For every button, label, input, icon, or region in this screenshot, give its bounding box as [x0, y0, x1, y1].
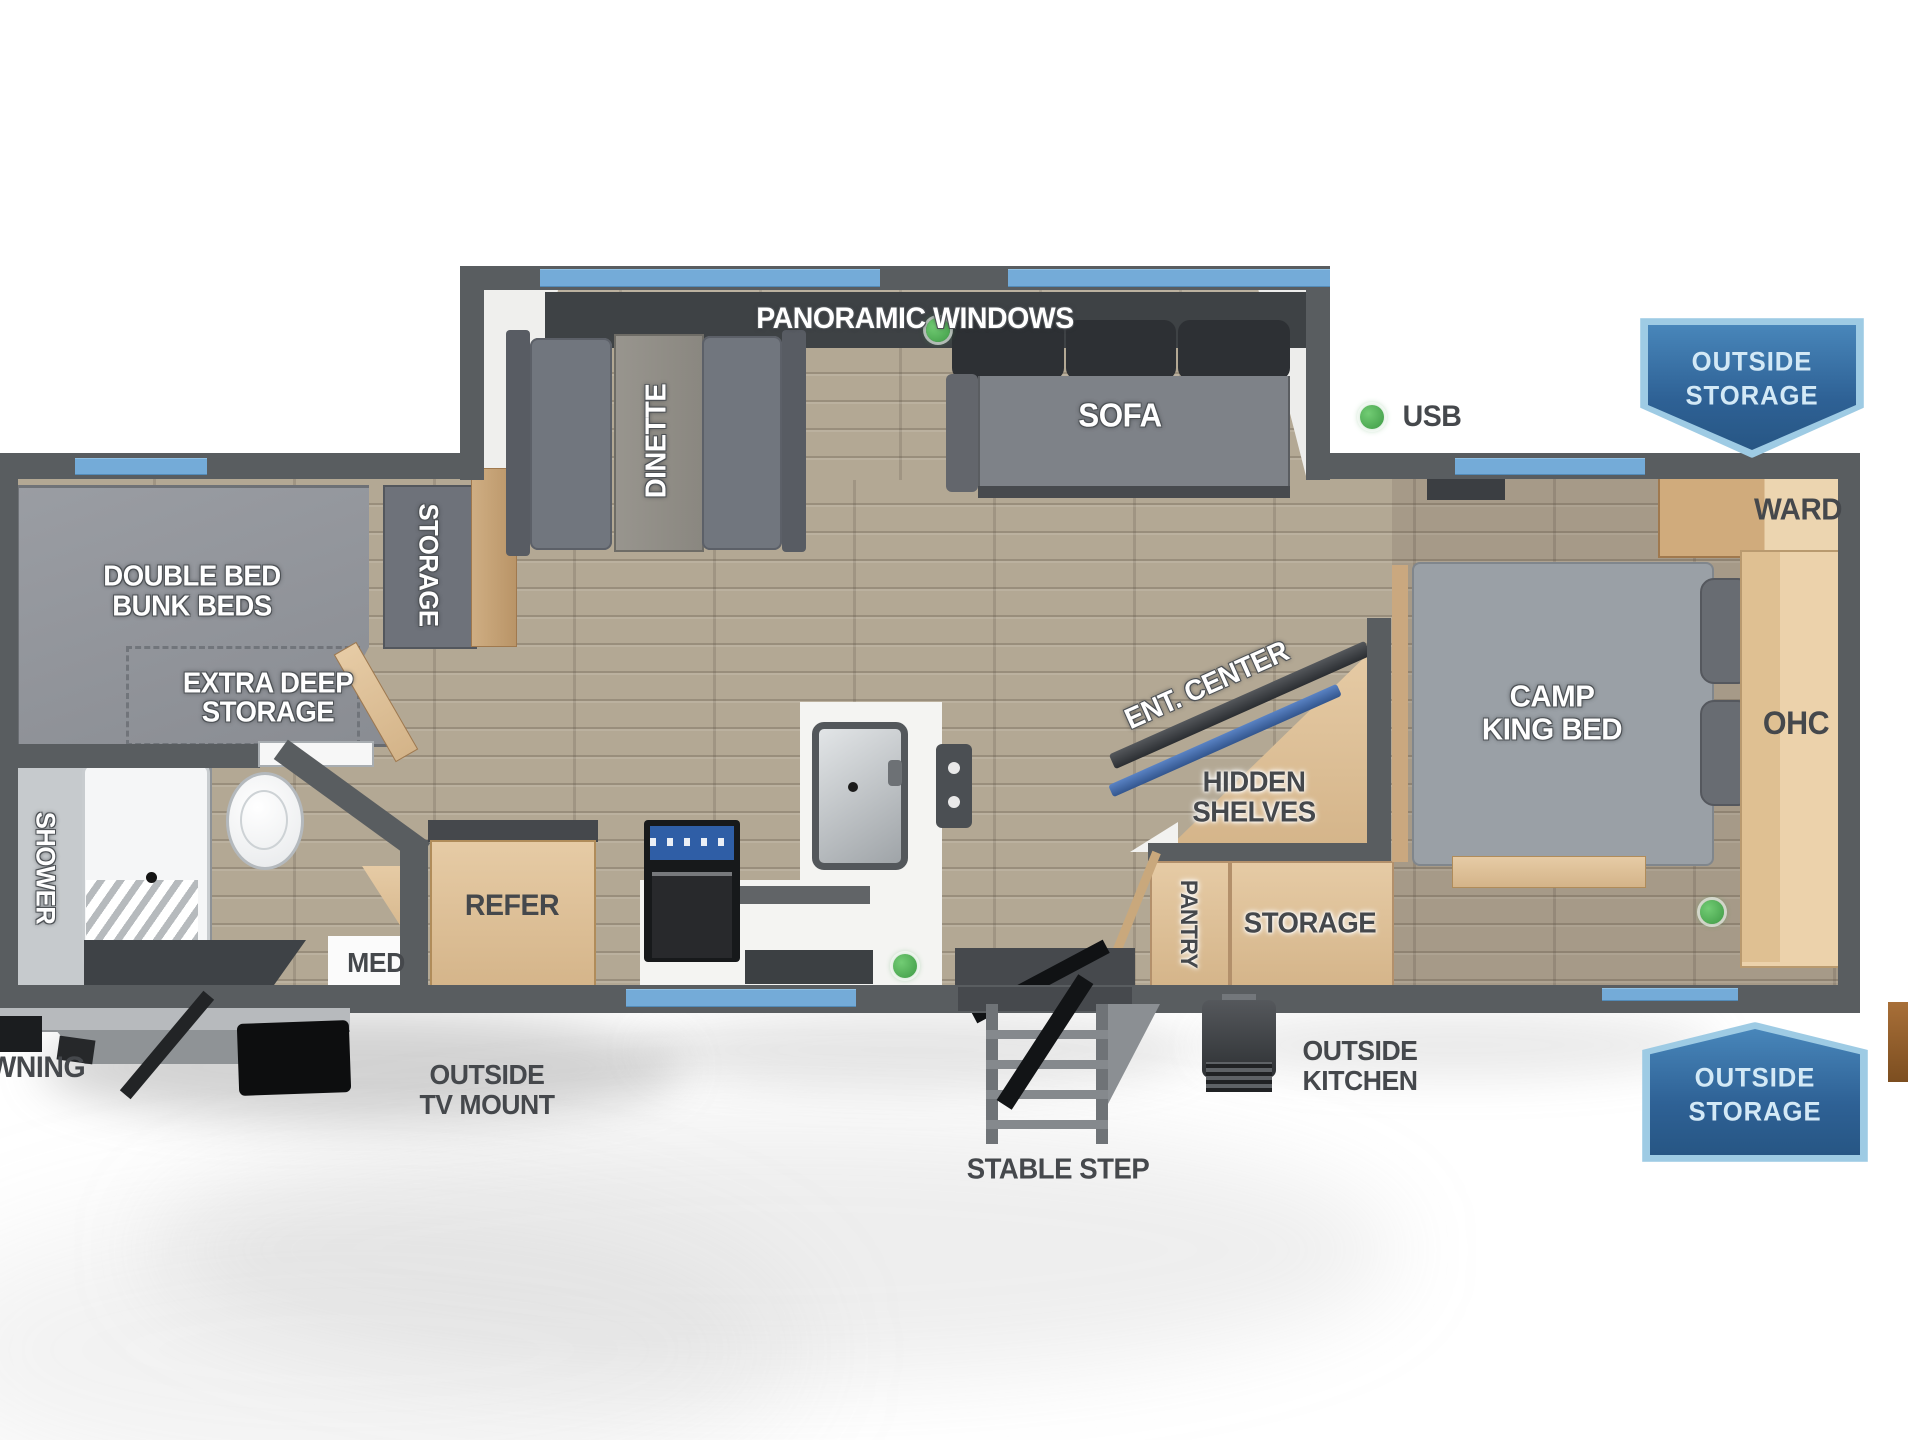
bed-footboard-wood	[1392, 565, 1408, 862]
grill-grate	[1206, 1062, 1272, 1092]
slideout-wall-right-ext	[1306, 266, 1330, 480]
cooktop	[650, 826, 734, 860]
usb-label: USB	[1403, 402, 1462, 432]
main-wall-top-left	[0, 453, 462, 479]
bunk-beds-label: BUNK BEDS	[112, 593, 272, 622]
dinette-seat-left	[530, 338, 612, 550]
shower-drain	[146, 872, 157, 883]
main-wall-left	[0, 453, 18, 1013]
bedroom-storage-label: STORAGE	[1244, 910, 1376, 939]
outside-storage-bottom-line1: OUTSIDE	[1695, 1065, 1816, 1092]
dinette-seatback-left	[506, 330, 530, 556]
awning-end-cap	[0, 1016, 42, 1052]
rv-floorplan: OUTSIDE STORAGE OUTSIDE STORAGE PANORAMI…	[0, 0, 1920, 1440]
outside-storage-top-line1: OUTSIDE	[1692, 349, 1813, 376]
bathroom-wall-top	[0, 744, 260, 768]
ward-label: WARD	[1754, 494, 1842, 525]
sofa-armrest	[946, 374, 978, 492]
window-slideout-left	[540, 269, 880, 287]
sofa-back-cushion	[1178, 320, 1290, 380]
pantry-wall-top	[1148, 843, 1391, 861]
window-slideout-right	[1008, 269, 1330, 287]
main-wall-right	[1838, 453, 1860, 1013]
extra-deep-label-1: EXTRA DEEP	[183, 670, 353, 699]
extra-deep-label-2: STORAGE	[202, 699, 334, 728]
ohc-label: OHC	[1763, 707, 1829, 739]
sink-faucet	[888, 760, 902, 786]
bedroom-wall-vertical	[1367, 618, 1391, 858]
ohc-inner-panel	[1742, 552, 1780, 962]
outside-storage-top-line2: STORAGE	[1685, 383, 1818, 410]
sink-drain	[848, 782, 858, 792]
sofa-back-cushion	[1066, 320, 1176, 380]
oven-door	[652, 872, 732, 958]
stable-step-label: STABLE STEP	[967, 1156, 1150, 1185]
refer-top-edge	[428, 820, 598, 842]
med-label: MED	[347, 949, 405, 977]
camp-king-bed-label-1: CAMP	[1510, 681, 1595, 712]
dinette-label: DINETTE	[643, 384, 672, 499]
step-rung	[986, 1060, 1108, 1069]
counter-front-shadow	[740, 886, 870, 904]
double-bed-label: DOUBLE BED	[103, 563, 280, 592]
shower-label: SHOWER	[32, 812, 59, 925]
hidden-shelves-label-1: HIDDEN	[1203, 769, 1306, 798]
sofa-label: SOFA	[1078, 399, 1161, 432]
dinette-seat-right	[702, 336, 782, 550]
outside-tv	[237, 1020, 351, 1096]
bunk-storage-label: STORAGE	[415, 503, 442, 626]
outside-tv-label-2: TV MOUNT	[419, 1091, 554, 1119]
refer-label: REFER	[465, 891, 559, 921]
outside-kitchen-label-1: OUTSIDE	[1303, 1037, 1418, 1065]
window-rear	[1602, 988, 1738, 1001]
outlet-dot	[948, 762, 960, 774]
sofa-seat	[978, 376, 1290, 496]
kitchen-sink	[812, 722, 908, 870]
window-bunk	[75, 458, 207, 475]
sofa-front-edge	[978, 486, 1290, 498]
usb-dot-legend	[1360, 405, 1384, 429]
outlet-block	[936, 744, 972, 828]
outside-storage-bottom-line2: STORAGE	[1688, 1099, 1821, 1126]
outside-kitchen-label-2: KITCHEN	[1303, 1067, 1418, 1095]
panoramic-windows-label: PANORAMIC WINDOWS	[756, 304, 1074, 334]
window-kitchen	[626, 989, 856, 1007]
dinette-seatback-right	[782, 330, 806, 552]
bath-counter	[84, 940, 306, 990]
usb-dot-kitchen	[893, 954, 917, 978]
outside-tv-label-1: OUTSIDE	[430, 1061, 545, 1089]
rear-post	[1888, 1002, 1908, 1082]
base-cabinet-faces	[745, 950, 873, 984]
window-bedroom	[1455, 458, 1645, 475]
outlet-dot	[948, 796, 960, 808]
usb-dot-bedroom	[1700, 900, 1724, 924]
hidden-shelves-label-2: SHELVES	[1192, 799, 1315, 828]
bed-bench	[1452, 856, 1646, 888]
toilet-seat-ring	[240, 790, 288, 850]
step-rung	[986, 1120, 1108, 1129]
slideout-wall-left-ext	[460, 266, 484, 480]
pantry-label: PANTRY	[1176, 880, 1200, 968]
camp-king-bed-label-2: KING BED	[1482, 714, 1622, 745]
awning-label: AWNING	[0, 1053, 85, 1083]
